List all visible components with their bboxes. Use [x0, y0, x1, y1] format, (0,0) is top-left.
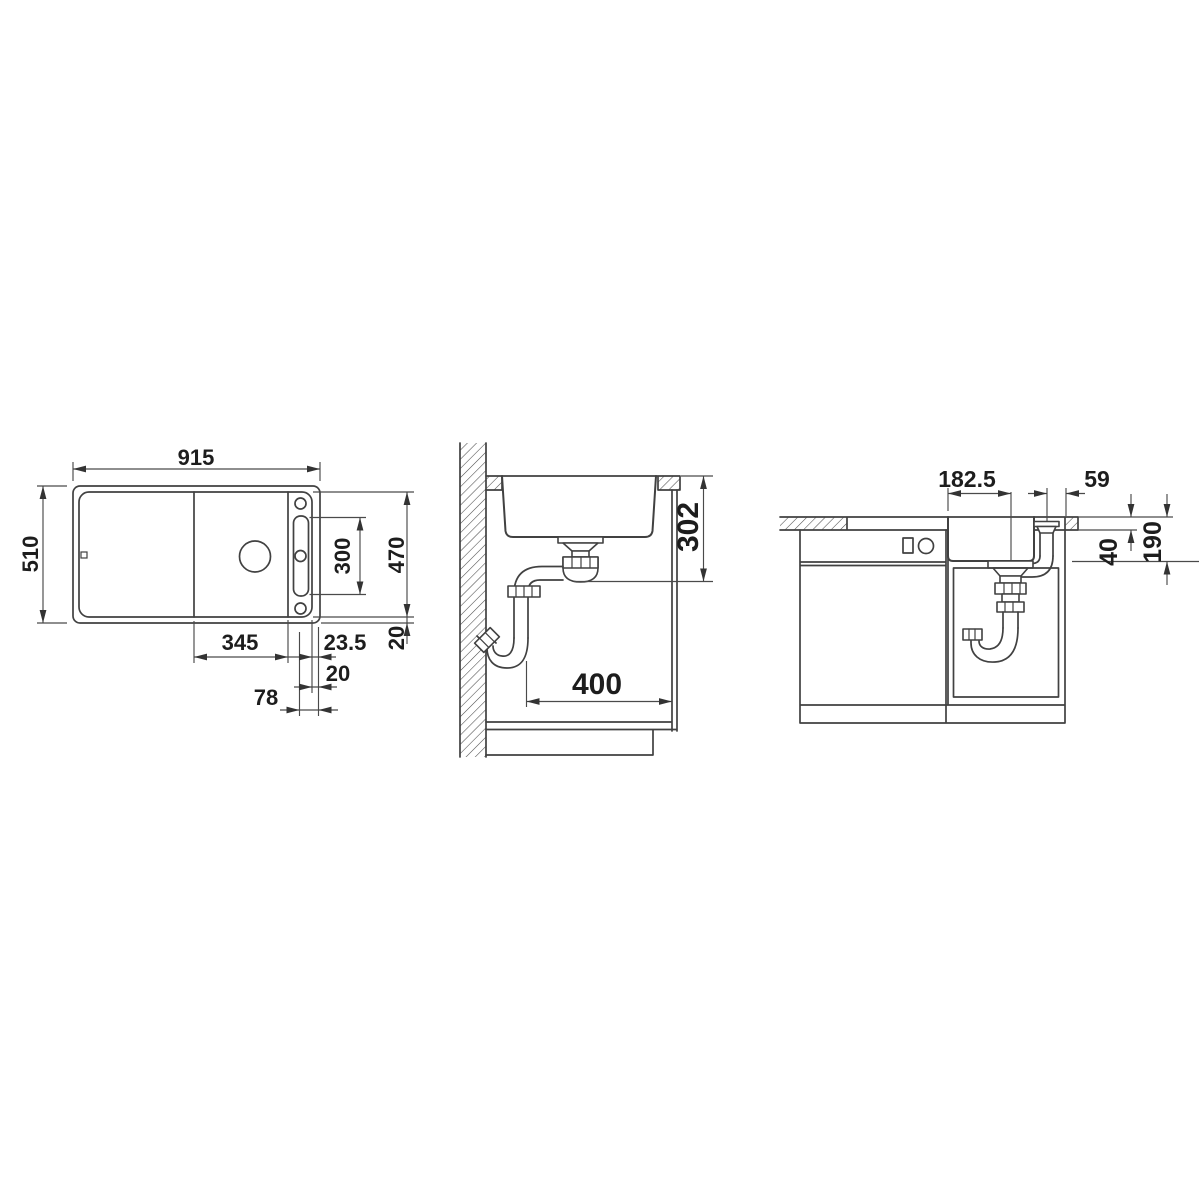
arrow	[40, 610, 47, 623]
arrow	[357, 518, 364, 531]
technical-drawing-page: 915 510 300 470 20 345 23.5 20 78	[0, 0, 1200, 1200]
bowl-front	[948, 517, 1034, 561]
countertop	[486, 476, 680, 490]
dim-label-78: 78	[254, 685, 278, 710]
counter-hatch-right	[1065, 517, 1078, 530]
arrow	[700, 569, 707, 582]
bowl-section	[502, 476, 656, 537]
strainer-flange	[988, 561, 1033, 568]
tailpipe-2	[1002, 594, 1019, 602]
sink-inner-rim	[79, 492, 312, 617]
arrow	[299, 654, 312, 661]
strainer-flange	[558, 537, 603, 543]
dim-label-345: 345	[222, 630, 259, 655]
dim-label-20-rim: 20	[384, 626, 409, 650]
dim-label-510: 510	[18, 536, 43, 573]
dim-label-470: 470	[384, 537, 409, 574]
drain-hole	[240, 541, 271, 572]
tap-hole-top	[295, 498, 306, 509]
dim-label-400: 400	[572, 668, 622, 701]
plan-view: 915 510 300 470 20 345 23.5 20 78	[18, 445, 414, 716]
cabinet-front	[800, 530, 1065, 723]
wall-hatch	[460, 443, 486, 757]
arrow	[527, 698, 540, 705]
front-section-view: 182.5 59 40 190	[780, 466, 1199, 723]
dim-label-182-5: 182.5	[938, 466, 996, 492]
arrow	[73, 466, 86, 473]
arrow	[700, 476, 707, 489]
trap-cap-nut	[963, 629, 982, 640]
side-section-view: 302 400	[460, 443, 713, 757]
arrow	[307, 466, 320, 473]
arrow	[357, 582, 364, 595]
sink-installation-drawing: 915 510 300 470 20 345 23.5 20 78	[0, 0, 1200, 1200]
arrow	[194, 654, 207, 661]
arrow	[1128, 530, 1135, 543]
arrow	[1128, 504, 1135, 517]
overflow-cone	[1037, 527, 1056, 534]
sink-outer-rim	[73, 486, 320, 623]
strainer-cone	[993, 568, 1028, 576]
trap-nut-2	[997, 602, 1024, 612]
counter-hatch-left	[780, 517, 847, 530]
trap-nut-1	[995, 583, 1026, 594]
dim-label-20-slot: 20	[326, 661, 350, 686]
plan-dimension-lines	[43, 469, 407, 710]
dim-label-23-5: 23.5	[324, 630, 367, 655]
arrow	[275, 654, 288, 661]
handle-square	[903, 538, 913, 553]
front-dimension-lines	[948, 494, 1167, 586]
arrow	[299, 684, 312, 691]
tailpipe	[1000, 576, 1021, 583]
overflow-slot	[81, 552, 87, 558]
counter-hatch-left	[486, 476, 502, 490]
tailpipe	[572, 551, 589, 557]
trap-downpipe	[1003, 612, 1018, 628]
counter-hatch-right	[658, 476, 680, 490]
arrow	[404, 604, 411, 617]
arrow	[319, 707, 332, 714]
tap-hole-middle	[295, 551, 306, 562]
dim-label-300: 300	[330, 538, 355, 575]
strainer-cone	[563, 543, 598, 551]
arrow	[659, 698, 672, 705]
arrow	[404, 492, 411, 505]
tap-hole-bottom	[295, 603, 306, 614]
arrow	[998, 490, 1011, 497]
dim-label-40: 40	[1095, 538, 1123, 566]
arrow	[40, 486, 47, 499]
dim-label-190: 190	[1139, 521, 1167, 563]
handle-circle	[919, 539, 934, 554]
plan-extension-lines	[37, 462, 414, 716]
dim-label-59: 59	[1084, 466, 1110, 492]
dim-label-915: 915	[178, 445, 215, 470]
arrow	[1164, 504, 1171, 517]
arrow	[1066, 490, 1079, 497]
arrow	[1034, 490, 1047, 497]
dim-label-302: 302	[672, 502, 705, 552]
arrow	[287, 707, 300, 714]
waste-pipe	[514, 567, 563, 639]
riser-pipe	[1040, 533, 1053, 556]
